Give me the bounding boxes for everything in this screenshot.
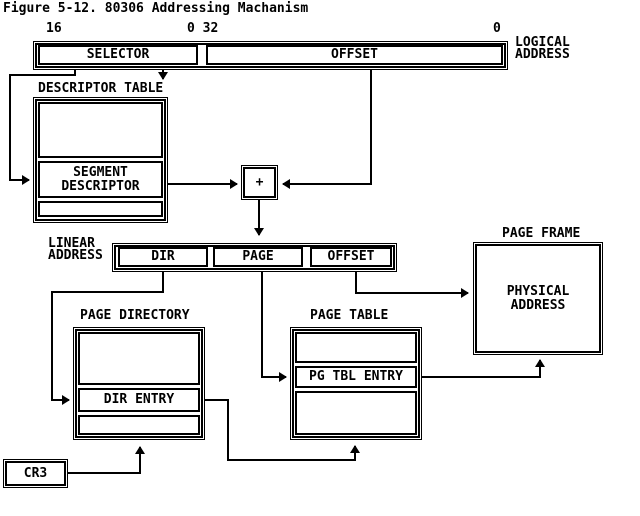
page-directory-empty-slot-top (78, 332, 200, 385)
page-directory-title: PAGE DIRECTORY (80, 310, 190, 322)
offset-field: OFFSET (206, 45, 503, 65)
segment-descriptor-entry: SEGMENT DESCRIPTOR (38, 161, 163, 198)
bit-label-16: 16 (46, 23, 62, 35)
page-directory-empty-slot-bottom (78, 415, 200, 435)
selector-field: SELECTOR (38, 45, 198, 65)
page-table-empty-slot-top (295, 332, 417, 363)
page-frame-box: PHYSICAL ADDRESS (473, 242, 603, 355)
page-table-empty-slot-bottom (295, 391, 417, 435)
bit-label-0: 0 (493, 23, 501, 35)
descriptor-table-title: DESCRIPTOR TABLE (38, 83, 163, 95)
adder-box: + (241, 165, 278, 200)
dir-field: DIR (118, 247, 208, 267)
wire-page-to-page-table (262, 272, 286, 377)
linear-address-caption: LINEAR ADDRESS (48, 238, 103, 262)
pg-tbl-entry: PG TBL ENTRY (295, 366, 417, 388)
logical-address-caption: LOGICAL ADDRESS (515, 37, 570, 61)
dir-entry: DIR ENTRY (78, 388, 200, 412)
page-frame-title: PAGE FRAME (502, 228, 580, 240)
wire-cr3-to-page-directory (68, 447, 140, 473)
linear-offset-field: OFFSET (310, 247, 392, 267)
wire-offset-to-adder (283, 70, 371, 184)
descriptor-table-empty-slot-top (38, 102, 163, 158)
bit-label-0-32: 0 32 (187, 23, 218, 35)
page-table-title: PAGE TABLE (310, 310, 388, 322)
descriptor-table-empty-slot-bottom (38, 201, 163, 217)
wire-pg-tbl-entry-to-page-frame (422, 360, 540, 377)
page-field: PAGE (213, 247, 303, 267)
figure-canvas: Figure 5-12. 80306 Addressing Machanism … (0, 0, 640, 516)
wire-offset-to-page-frame (356, 272, 468, 293)
cr3-register: CR3 (3, 459, 68, 488)
figure-title: Figure 5-12. 80306 Addressing Machanism (3, 2, 308, 16)
